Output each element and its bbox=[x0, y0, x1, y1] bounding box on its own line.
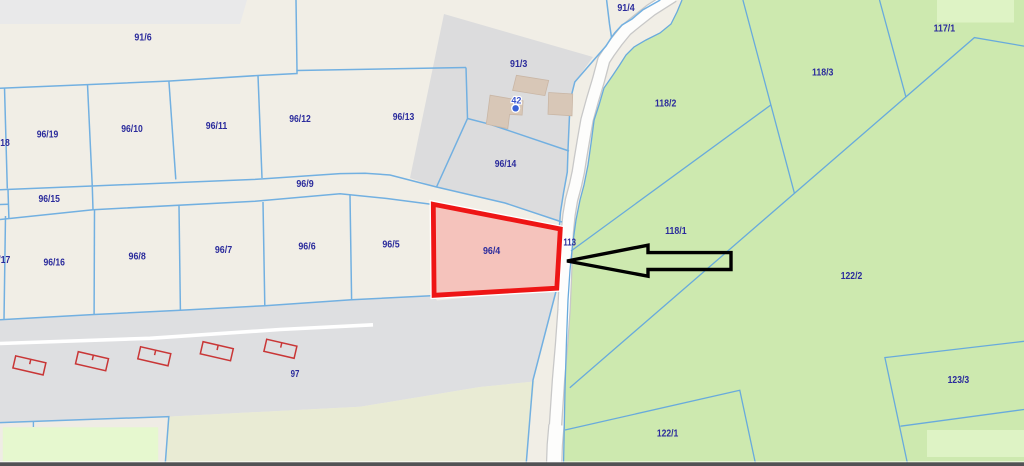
svg-text:96/4: 96/4 bbox=[483, 246, 501, 257]
svg-text:117/1: 117/1 bbox=[934, 23, 956, 34]
svg-text:122/1: 122/1 bbox=[657, 428, 679, 439]
svg-text:123/3: 123/3 bbox=[948, 375, 970, 386]
svg-text:42: 42 bbox=[511, 95, 521, 105]
svg-text:96/15: 96/15 bbox=[38, 194, 60, 205]
svg-text:118/2: 118/2 bbox=[655, 99, 677, 110]
svg-text:91/6: 91/6 bbox=[134, 33, 152, 44]
svg-text:96/11: 96/11 bbox=[206, 121, 228, 132]
svg-text:91/3: 91/3 bbox=[510, 59, 528, 70]
svg-text:96/18: 96/18 bbox=[0, 138, 10, 149]
svg-text:113: 113 bbox=[563, 238, 576, 249]
svg-text:96/6: 96/6 bbox=[298, 242, 316, 253]
svg-text:96/10: 96/10 bbox=[121, 124, 143, 135]
svg-text:96/16: 96/16 bbox=[43, 258, 65, 269]
svg-text:96/5: 96/5 bbox=[382, 240, 400, 251]
svg-text:96/7: 96/7 bbox=[215, 245, 233, 256]
svg-text:96/12: 96/12 bbox=[289, 114, 311, 125]
svg-text:91/4: 91/4 bbox=[617, 3, 635, 14]
svg-text:118/3: 118/3 bbox=[812, 68, 834, 79]
svg-text:118/1: 118/1 bbox=[665, 226, 687, 237]
svg-text:96/17: 96/17 bbox=[0, 255, 11, 266]
svg-text:97: 97 bbox=[291, 369, 300, 380]
svg-text:96/9: 96/9 bbox=[296, 179, 314, 190]
svg-text:96/8: 96/8 bbox=[129, 252, 147, 263]
svg-text:122/2: 122/2 bbox=[841, 271, 863, 282]
svg-text:96/13: 96/13 bbox=[393, 112, 415, 123]
svg-text:96/14: 96/14 bbox=[495, 159, 517, 170]
svg-text:96/19: 96/19 bbox=[37, 130, 59, 141]
